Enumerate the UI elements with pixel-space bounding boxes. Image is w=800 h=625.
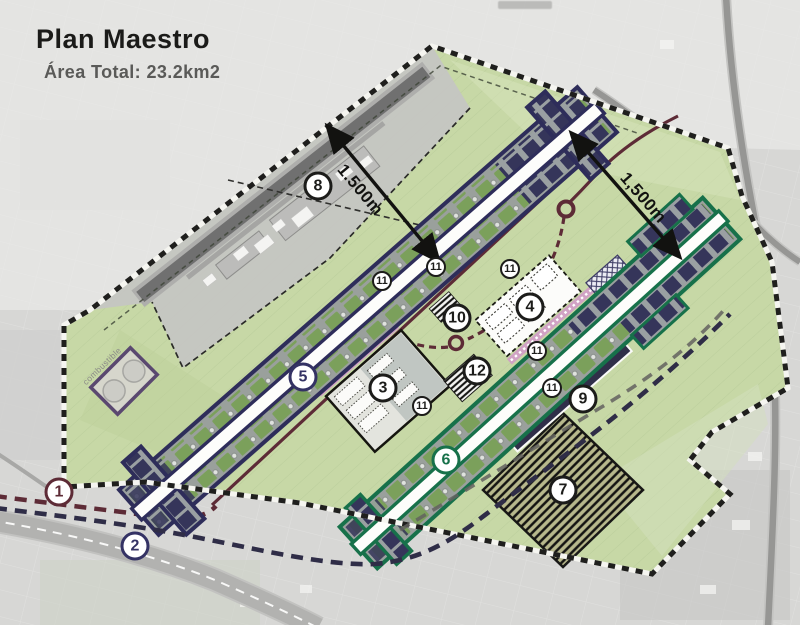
marker-1: 1 (45, 478, 74, 507)
marker-11: 11 (542, 378, 562, 398)
marker-7: 7 (549, 476, 578, 505)
roundabout-north (559, 202, 574, 217)
map-canvas (0, 0, 800, 625)
roundabout-central (450, 337, 463, 350)
marker-12: 12 (463, 357, 492, 386)
marker-10: 10 (443, 304, 472, 333)
marker-11: 11 (527, 341, 547, 361)
marker-11: 11 (500, 259, 520, 279)
marker-6: 6 (432, 446, 461, 475)
plan-maestro-map: Plan Maestro Área Total: 23.2km2 1.500m … (0, 0, 800, 625)
marker-11: 11 (412, 396, 432, 416)
marker-8: 8 (304, 172, 333, 201)
marker-5: 5 (289, 363, 318, 392)
map-watermark (498, 1, 552, 9)
page-title: Plan Maestro (36, 24, 220, 55)
marker-11: 11 (426, 257, 446, 277)
page-subtitle: Área Total: 23.2km2 (44, 62, 220, 83)
marker-11: 11 (372, 271, 392, 291)
marker-2: 2 (121, 532, 150, 561)
marker-4: 4 (516, 293, 545, 322)
title-block: Plan Maestro Área Total: 23.2km2 (36, 24, 220, 83)
marker-3: 3 (369, 374, 398, 403)
marker-9: 9 (569, 385, 598, 414)
